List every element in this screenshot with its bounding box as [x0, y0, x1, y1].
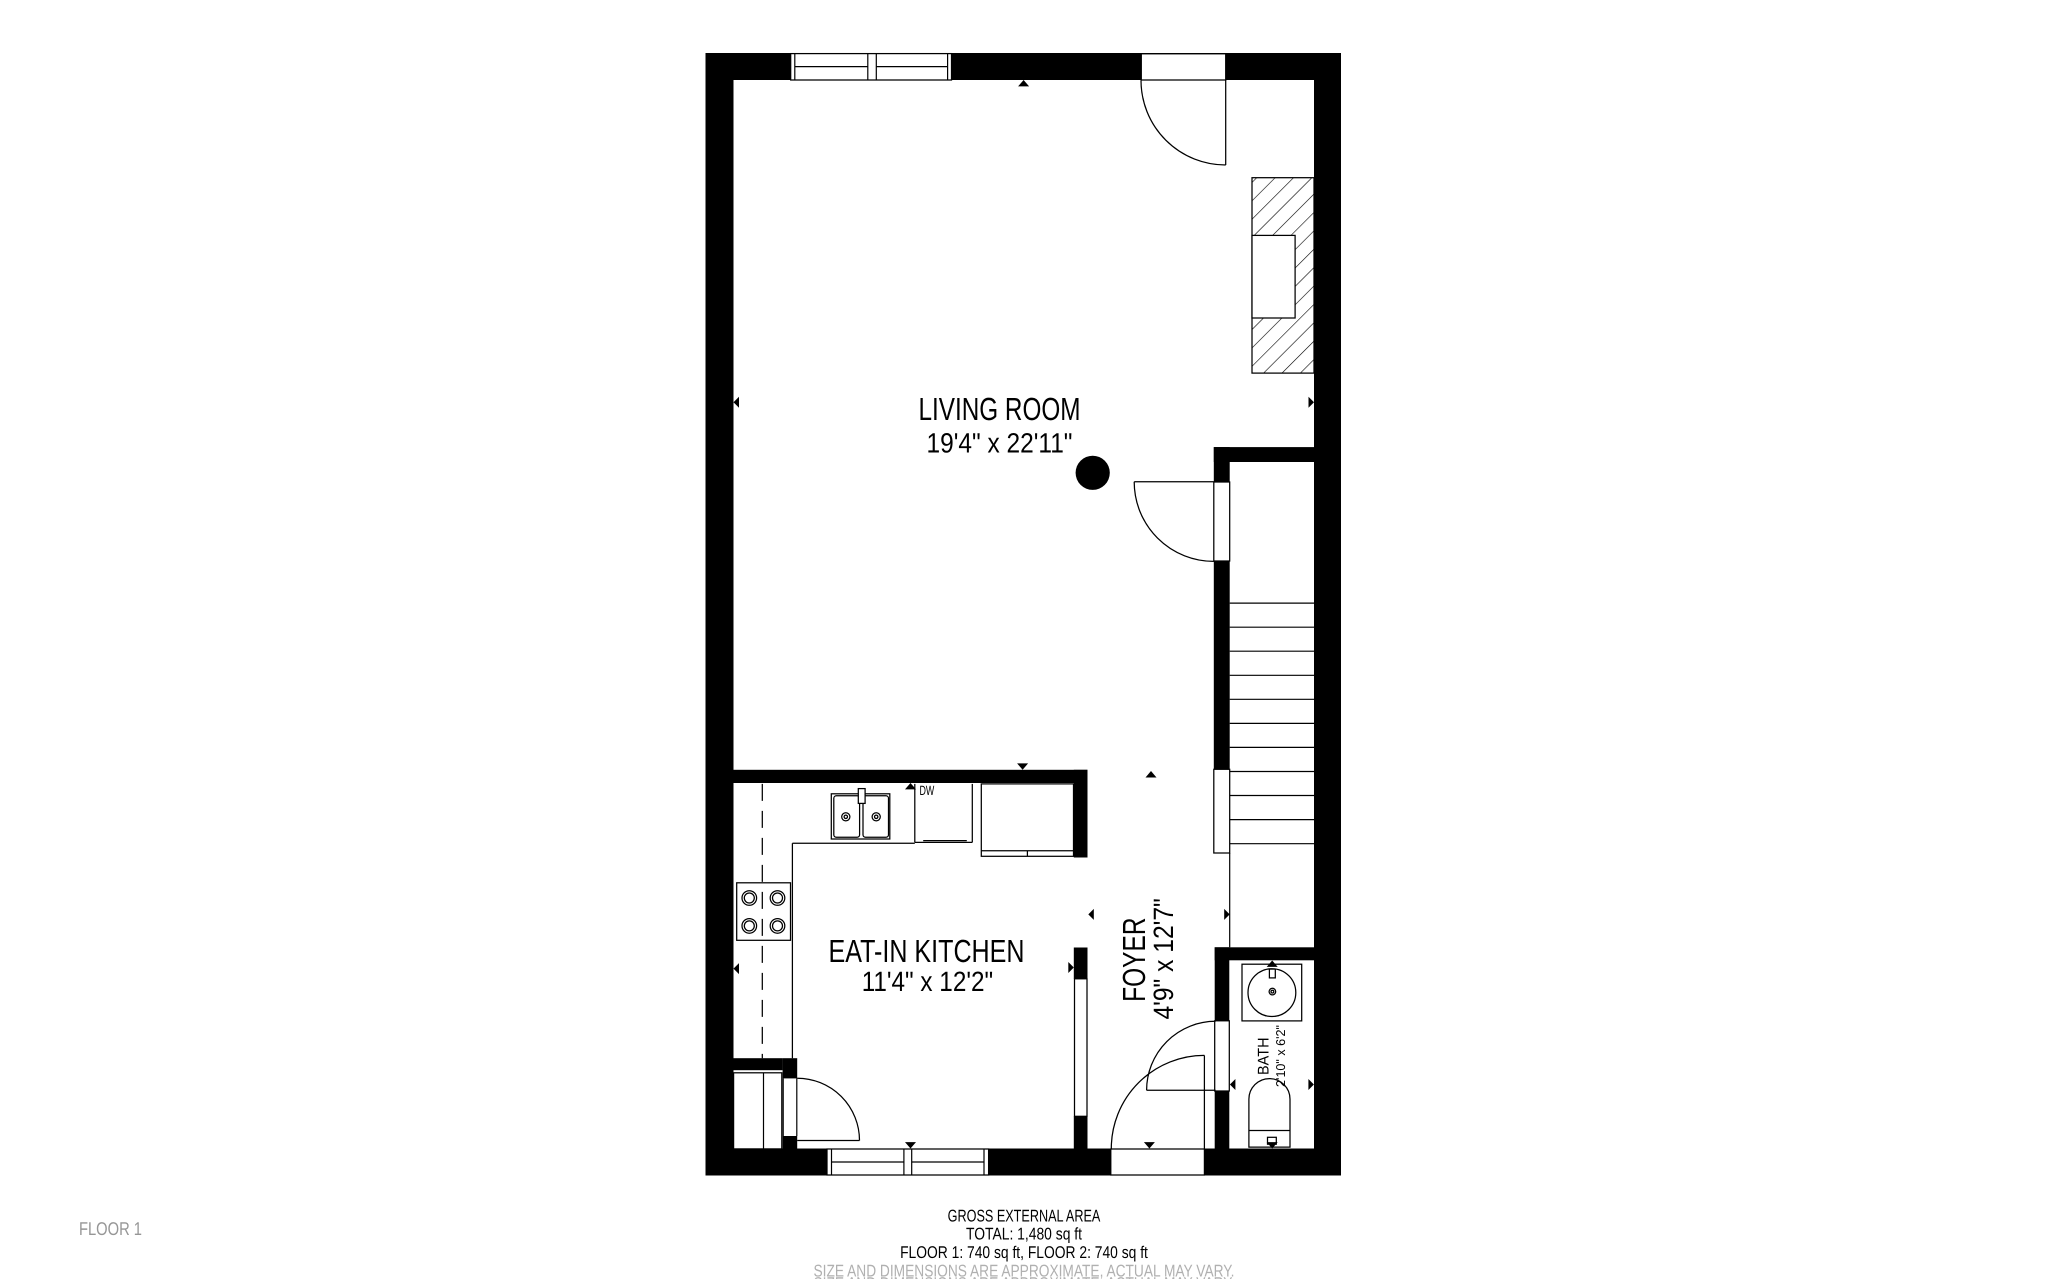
svg-text:SIZE AND DIMENSIONS ARE APPROX: SIZE AND DIMENSIONS ARE APPROXIMATE, ACT… [814, 1274, 1235, 1279]
svg-text:TOTAL: 1,480 sq ft: TOTAL: 1,480 sq ft [966, 1225, 1082, 1244]
svg-text:DW: DW [920, 783, 935, 798]
svg-text:FLOOR 1: 740 sq ft, FLOOR 2: 7: FLOOR 1: 740 sq ft, FLOOR 2: 740 sq ft [900, 1243, 1148, 1262]
svg-text:19'4" x 22'11": 19'4" x 22'11" [927, 427, 1073, 458]
svg-text:EAT-IN KITCHEN: EAT-IN KITCHEN [829, 933, 1025, 969]
svg-text:LIVING ROOM: LIVING ROOM [919, 391, 1081, 427]
svg-text:FLOOR 1: FLOOR 1 [79, 1218, 142, 1239]
svg-text:11'4" x 12'2": 11'4" x 12'2" [862, 966, 993, 997]
svg-text:BATH: BATH [1256, 1037, 1273, 1075]
svg-text:4'9" x 12'7": 4'9" x 12'7" [1148, 898, 1179, 1019]
svg-text:2'10" x 6'2": 2'10" x 6'2" [1273, 1025, 1288, 1087]
svg-text:FOYER: FOYER [1116, 918, 1152, 1002]
svg-text:GROSS EXTERNAL AREA: GROSS EXTERNAL AREA [948, 1206, 1101, 1225]
